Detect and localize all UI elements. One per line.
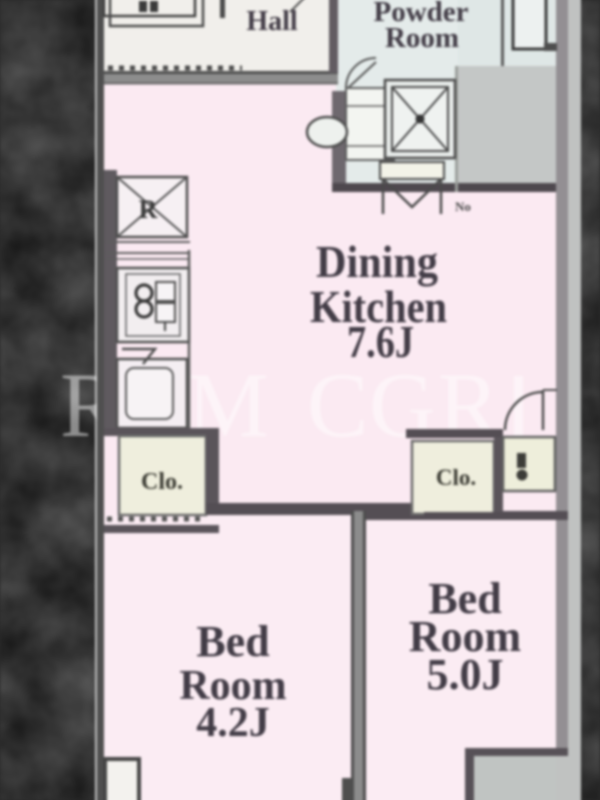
svg-text:R: R xyxy=(139,195,158,224)
svg-text:No: No xyxy=(455,199,471,214)
svg-text:Clo.: Clo. xyxy=(436,465,476,490)
svg-text:Room: Room xyxy=(385,22,459,54)
svg-text:C: C xyxy=(307,354,368,456)
svg-text:Clo.: Clo. xyxy=(141,469,183,495)
svg-text:Dining: Dining xyxy=(316,236,438,287)
svg-text:7.6J: 7.6J xyxy=(347,316,414,367)
svg-text:Hall: Hall xyxy=(246,6,298,37)
svg-text:5.0J: 5.0J xyxy=(427,650,504,699)
svg-text:4.2J: 4.2J xyxy=(196,700,270,746)
svg-text:Bed: Bed xyxy=(196,617,269,666)
